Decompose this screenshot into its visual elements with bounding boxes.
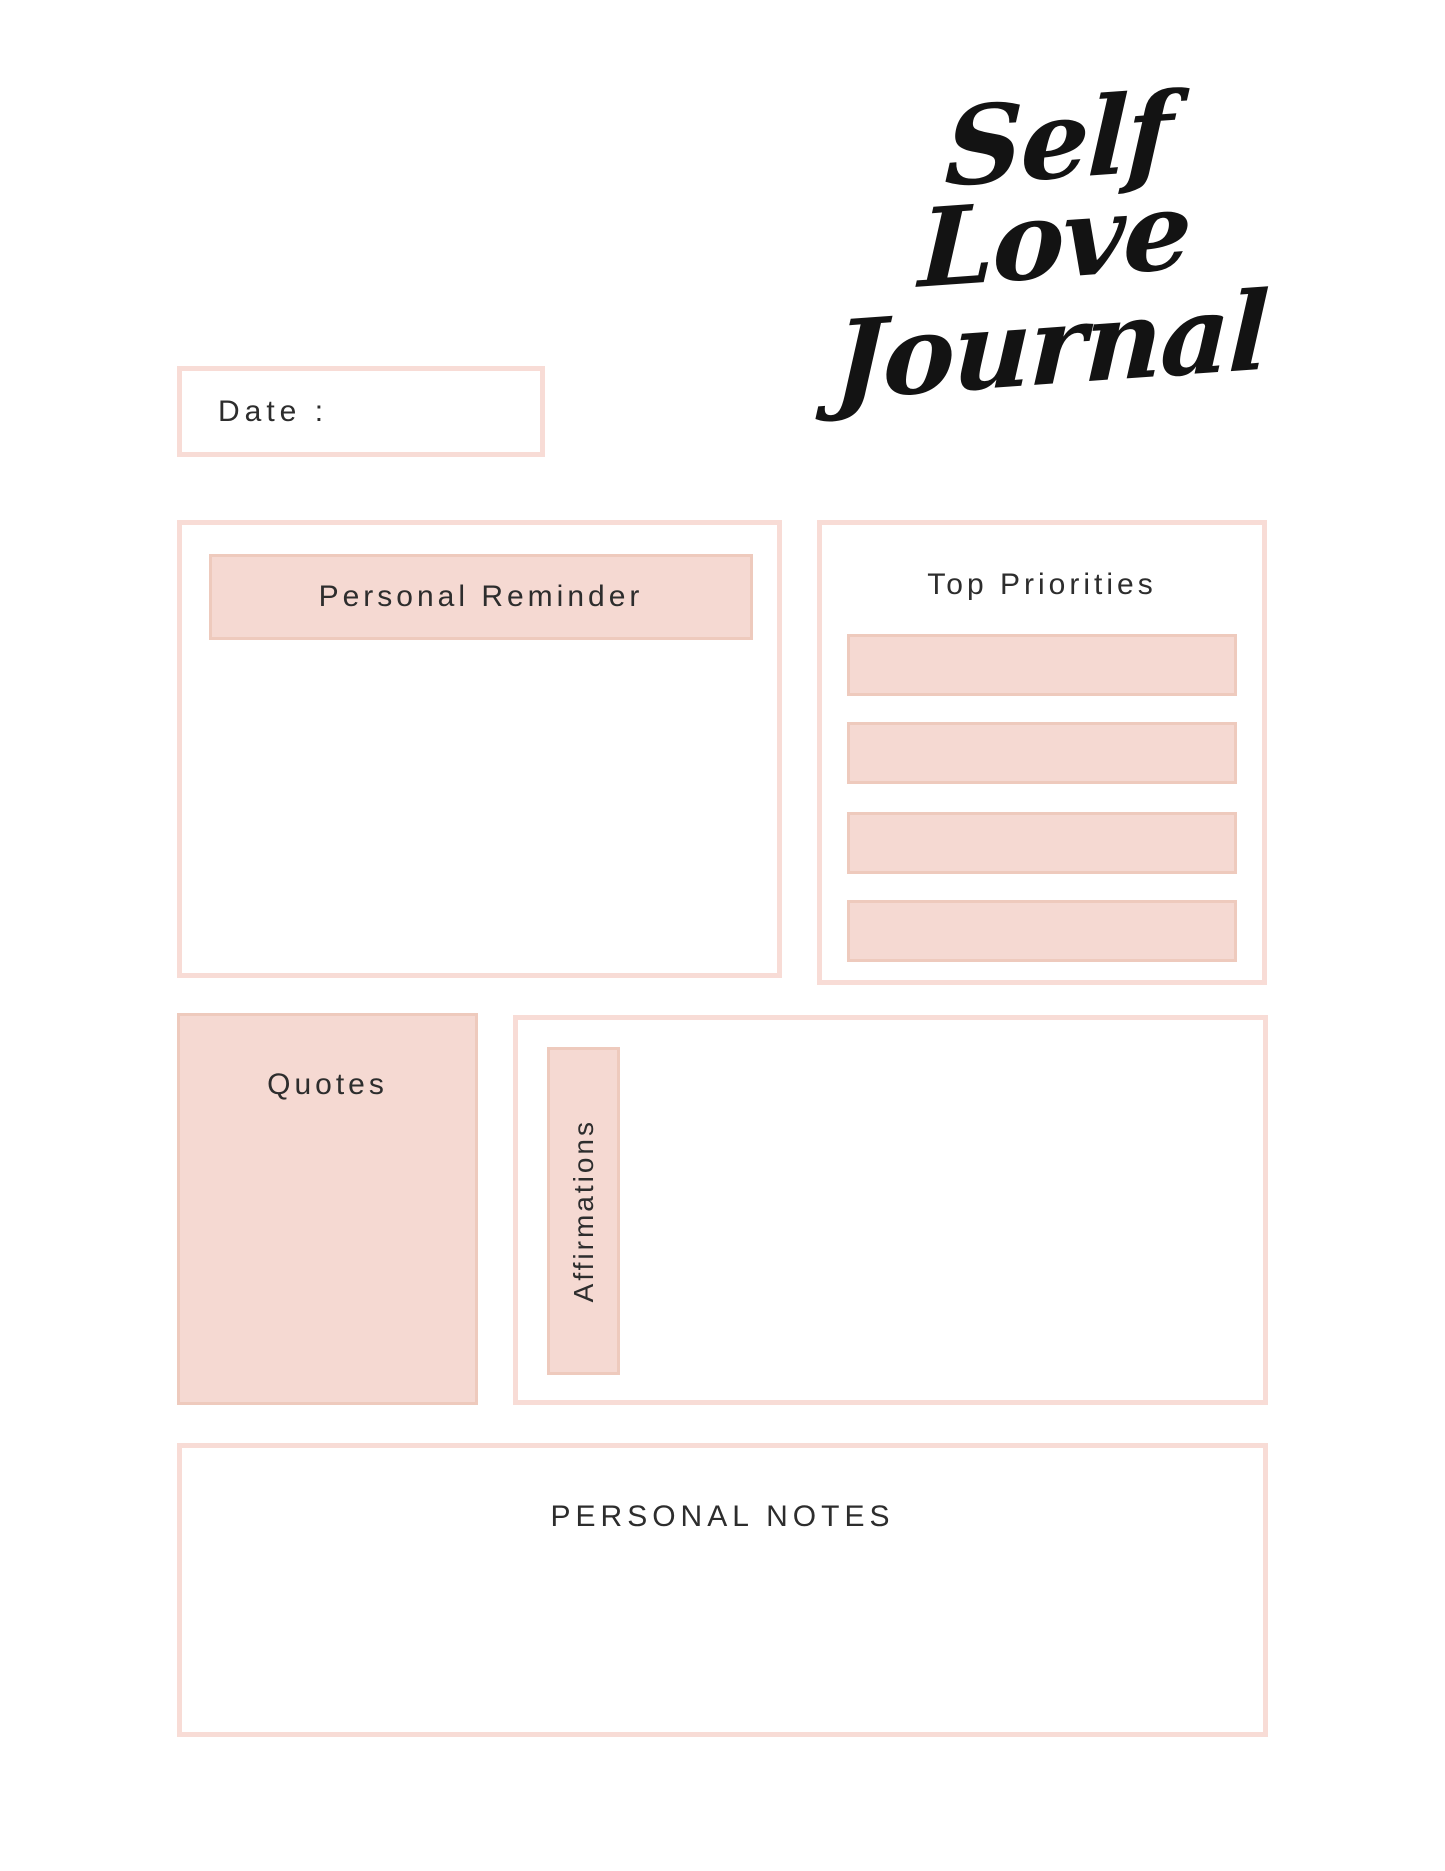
personal-notes-writing-area[interactable]: PERSONAL NOTES bbox=[177, 1443, 1268, 1737]
affirmations-writing-area[interactable] bbox=[513, 1015, 1268, 1405]
date-label: Date : bbox=[218, 395, 328, 429]
page-title-line2: Journal bbox=[805, 280, 1297, 414]
quotes-label: Quotes bbox=[267, 1068, 388, 1402]
top-priorities-label: Top Priorities bbox=[817, 568, 1267, 602]
priority-slot-3[interactable] bbox=[847, 812, 1237, 874]
personal-reminder-label: Personal Reminder bbox=[319, 580, 644, 614]
personal-notes-label: PERSONAL NOTES bbox=[551, 1500, 895, 1732]
quotes-writing-area[interactable]: Quotes bbox=[177, 1013, 478, 1405]
priority-slot-2[interactable] bbox=[847, 722, 1237, 784]
priority-slot-4[interactable] bbox=[847, 900, 1237, 962]
personal-reminder-header: Personal Reminder bbox=[209, 554, 753, 640]
journal-page: Self Love Journal Date : Personal Remind… bbox=[0, 0, 1445, 1871]
affirmations-label: Affirmations bbox=[568, 1119, 600, 1302]
page-title: Self Love Journal bbox=[806, 74, 1304, 380]
date-field[interactable]: Date : bbox=[177, 366, 545, 457]
priority-slot-1[interactable] bbox=[847, 634, 1237, 696]
affirmations-label-bar: Affirmations bbox=[547, 1047, 620, 1375]
